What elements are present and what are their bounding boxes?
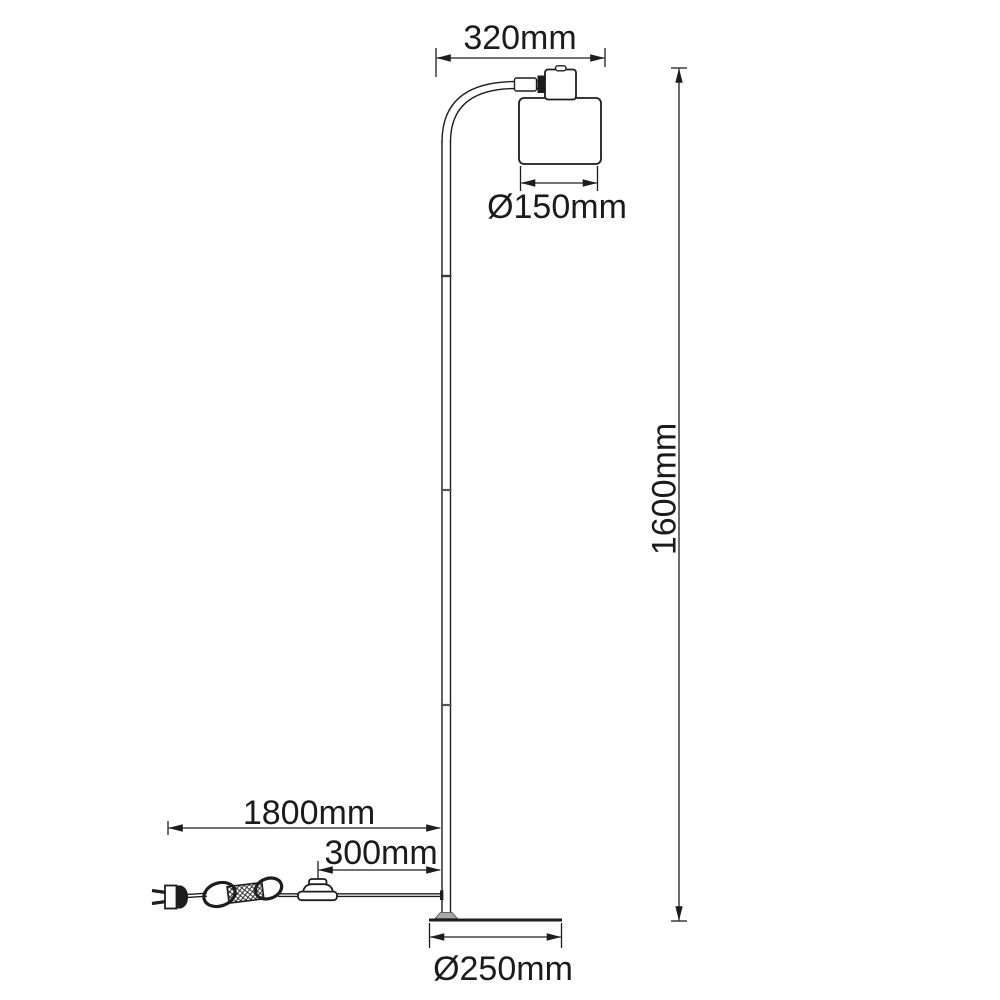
head-pivot-joint [538,76,545,94]
floor-lamp-dimension-drawing: 320mm Ø150mm 1600mm 1800mm 300mm [0,0,1000,1000]
power-plug [152,886,188,909]
cord-pole-junction [440,890,443,900]
dimension-label-base-diameter: Ø250mm [433,950,573,988]
dimension-head-width: 320mm [436,19,605,77]
dimension-label-total-height: 1600mm [646,423,684,555]
power-cord-assembly [152,874,443,910]
dimension-label-shade-diameter: Ø150mm [487,188,627,226]
socket-box [545,70,576,100]
plug-prong [152,891,166,893]
dimension-switch-distance: 300mm [318,834,440,879]
dimension-total-height: 1600mm [646,68,688,921]
arm-coupler [515,78,537,91]
pole-base-fillet [435,912,458,918]
dimension-label-switch-distance: 300mm [324,834,437,872]
plug-body-front [165,886,177,909]
dimension-base-diameter: Ø250mm [430,923,573,988]
dimension-label-cord-length: 1800mm [243,794,375,832]
foot-switch [298,879,337,900]
socket-top-nub [556,66,567,71]
drawing-canvas: 320mm Ø150mm 1600mm 1800mm 300mm [0,0,1000,1000]
dimensions: 320mm Ø150mm 1600mm 1800mm 300mm [168,19,687,988]
dimension-label-head-width: 320mm [463,19,576,57]
lamp-shade [519,98,601,164]
foot-switch-base [298,892,337,901]
dimension-cord-length: 1800mm [168,794,440,835]
plug-body-back [177,886,189,909]
dimension-shade-diameter: Ø150mm [487,166,627,226]
plug-prong [152,902,166,904]
